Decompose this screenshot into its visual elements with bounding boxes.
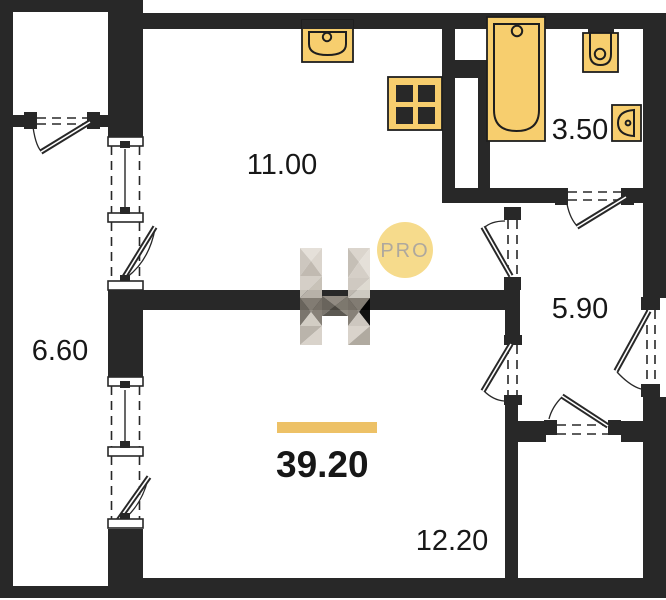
area-label-bathroom: 3.50 [552, 114, 608, 146]
wall-segment [99, 115, 108, 127]
sink-back-edge [302, 20, 353, 29]
window-tick [120, 207, 130, 214]
kitchen-sink [302, 20, 353, 62]
wall-segment [621, 421, 646, 442]
window-sill [108, 281, 143, 290]
wall-segment [518, 421, 546, 442]
door-jamb [504, 277, 521, 290]
stove-burner [418, 107, 435, 124]
toilet-tank [588, 15, 614, 35]
wall-segment [505, 404, 518, 579]
window-tick [120, 381, 130, 388]
door-jamb [641, 297, 660, 310]
window-tick [120, 513, 130, 519]
wall-segment [442, 188, 558, 203]
stove-burner [418, 85, 435, 102]
door-jamb [504, 335, 522, 345]
total-area-accent-bar [277, 422, 377, 433]
door-jamb [504, 207, 521, 220]
stove [388, 77, 442, 130]
wall-segment [643, 13, 666, 298]
pro-badge: PRO [377, 222, 433, 278]
wall-segment [0, 0, 13, 598]
door-jamb [504, 395, 522, 405]
area-label-kitchen-living: 11.00 [247, 149, 317, 181]
window-sill [108, 213, 143, 222]
wall-segment [108, 13, 666, 29]
door-jamb [24, 112, 37, 129]
door-jamb [608, 420, 621, 435]
door-jamb [544, 420, 557, 435]
window-sill [108, 519, 143, 528]
wall-segment [0, 0, 143, 12]
area-label-balcony: 6.60 [32, 335, 88, 367]
wall-segment [108, 12, 143, 138]
toilet-body [583, 33, 618, 72]
area-label-total: 39.20 [276, 444, 369, 485]
window-tick [120, 275, 130, 281]
pro-badge-label: PRO [380, 240, 429, 262]
wall-segment [643, 397, 666, 598]
toilet [583, 15, 618, 72]
wall-segment [108, 578, 666, 598]
stove-burner [396, 85, 413, 102]
window-tick [120, 141, 130, 148]
wall-segment [442, 13, 455, 203]
wall-segment [108, 529, 143, 580]
wall-segment [0, 586, 110, 598]
floor-plan: PRO 11.00 3.50 6.60 5.90 12.20 39.20 [0, 0, 666, 600]
window-sill [108, 447, 143, 456]
area-label-room: 12.20 [416, 525, 489, 557]
door-jamb [641, 384, 660, 397]
area-label-hallway: 5.90 [552, 293, 608, 325]
bathtub [487, 17, 545, 141]
door-jamb [555, 188, 568, 205]
floor-plan-canvas: PRO 11.00 3.50 6.60 5.90 12.20 39.20 [0, 0, 666, 600]
stove-burner [396, 107, 413, 124]
wash-basin [612, 105, 641, 141]
wall-segment [505, 290, 520, 338]
window-tick [120, 441, 130, 448]
